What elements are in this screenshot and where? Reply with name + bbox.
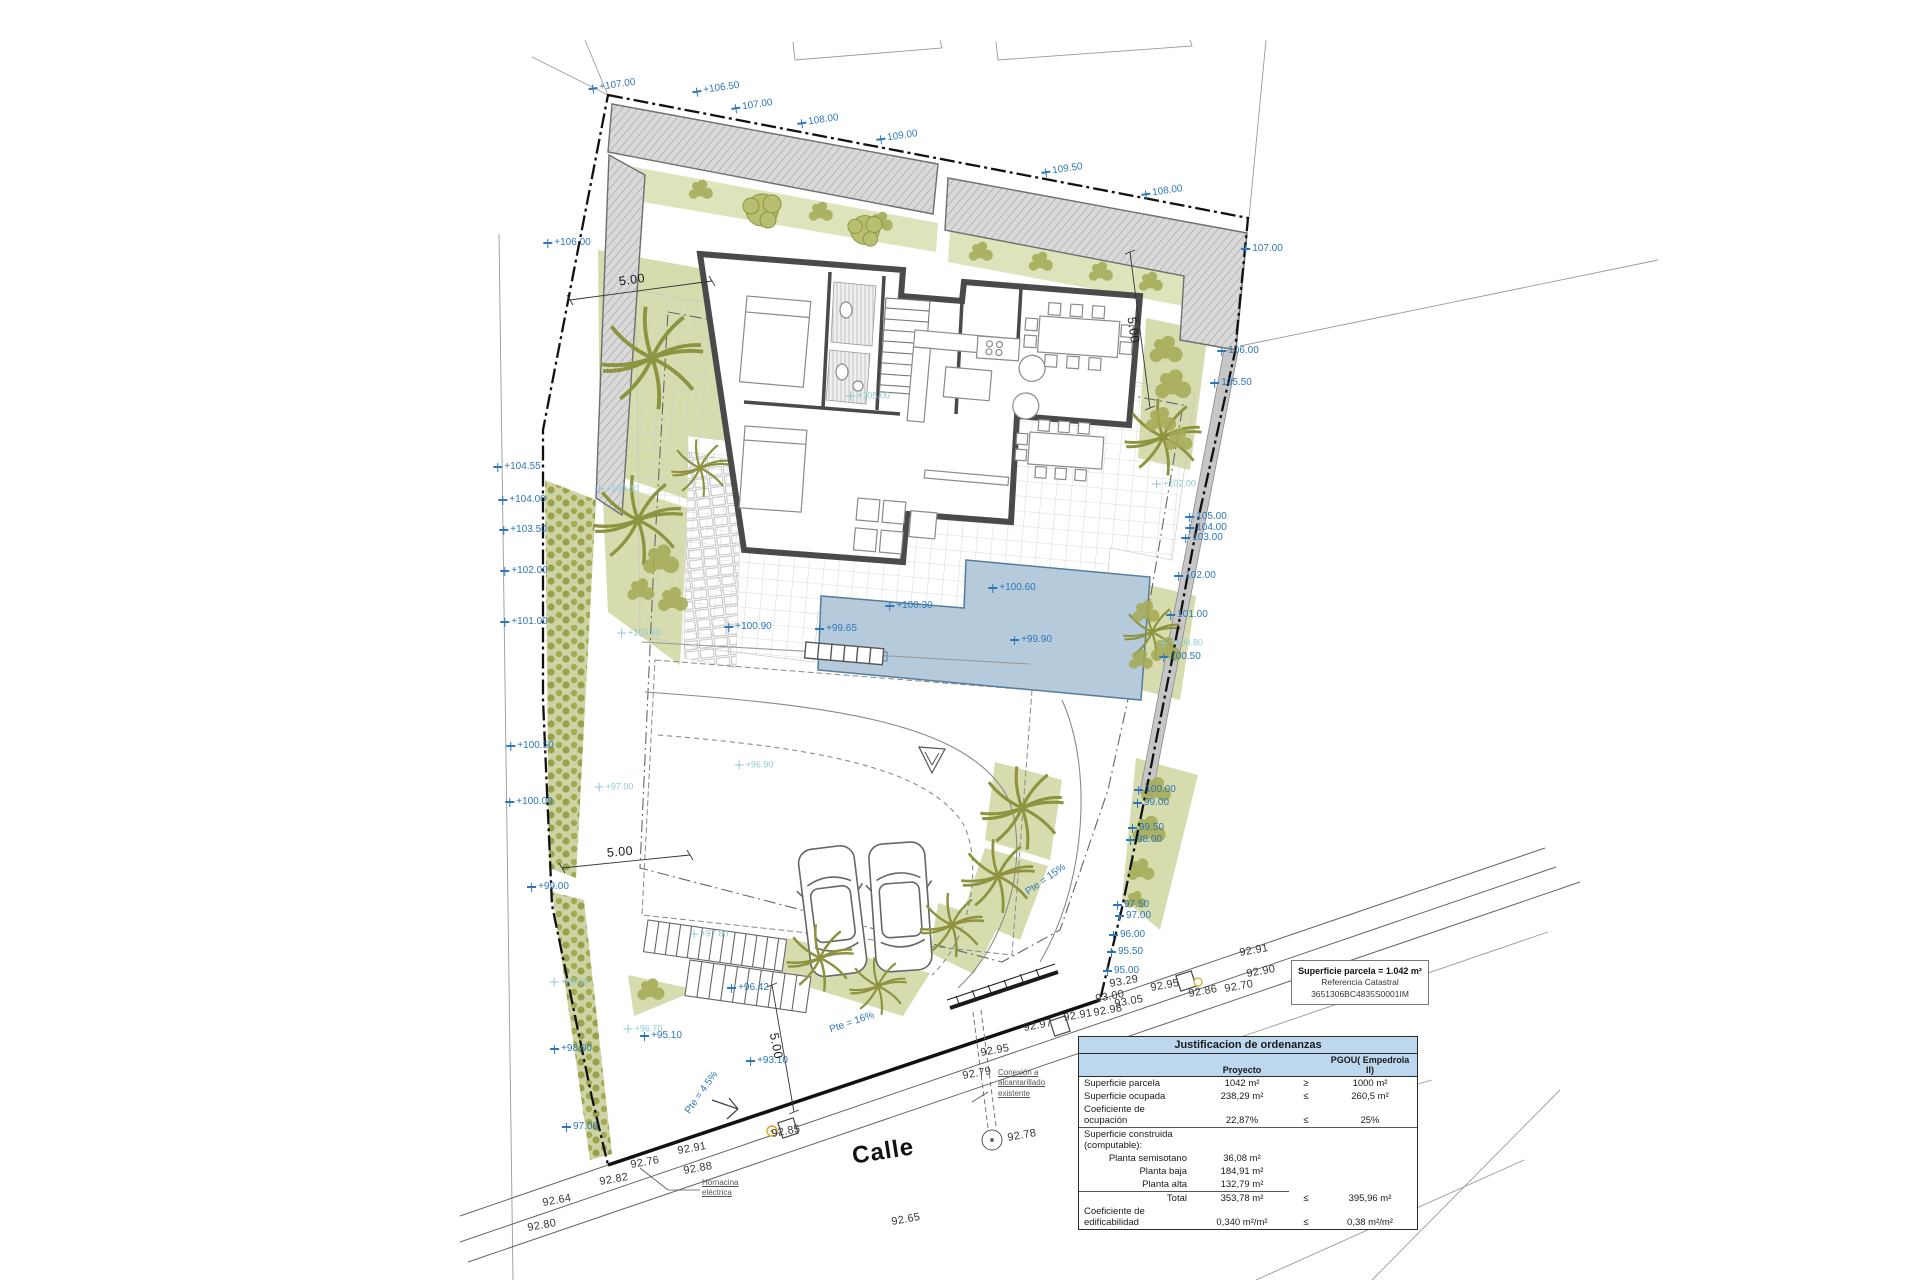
ordenanzas-cell: Coeficiente de ocupación [1079,1103,1195,1128]
sewer-connection-note: Conexión a alcantarillado existente [998,1068,1045,1099]
ordenanzas-cell [1323,1165,1417,1178]
entrance-gate [947,964,1058,1008]
col-header-empty [1079,1054,1195,1077]
site-plan-sheet: +107.00+106.50107.00108.00109.00109.5010… [0,0,1920,1280]
col-header-proyecto: Proyecto [1195,1054,1289,1077]
ordenanzas-cell: 1000 m² [1323,1077,1417,1091]
ordenanzas-cell [1323,1178,1417,1192]
ordenanzas-cell: 132,79 m² [1195,1178,1289,1192]
ordenanzas-cell: 22,87% [1195,1103,1289,1128]
site-plan-drawing [0,0,1920,1280]
ordenanzas-cell [1289,1178,1323,1192]
ordenanzas-cell: 238,29 m² [1195,1090,1289,1103]
ordenanzas-cell: ≥ [1289,1077,1323,1091]
parcel-area-value: Superficie parcela = 1.042 m² [1295,965,1425,977]
col-header-pgou: PGOU( Empedrola II) [1323,1054,1417,1077]
ordenanzas-cell: 0,38 m²/m² [1323,1205,1417,1229]
hornacina-note: Hornacina eléctrica [702,1178,738,1199]
ordenanzas-cell [1289,1152,1323,1165]
ordenanzas-cell: ≤ [1289,1103,1323,1128]
parcel-info-box: Superficie parcela = 1.042 m² Referencia… [1291,960,1429,1005]
ordenanzas-cell: 1042 m² [1195,1077,1289,1091]
ordenanzas-title: Justificacion de ordenanzas [1079,1037,1417,1054]
ordenanzas-cell [1289,1128,1323,1153]
ordenanzas-cell [1289,1165,1323,1178]
ordenanzas-cell: Planta semisotano [1079,1152,1195,1165]
ordenanzas-cell [1323,1128,1417,1153]
ordenanzas-cell: 260,5 m² [1323,1090,1417,1103]
ordenanzas-cell: Total [1079,1192,1195,1206]
leader-lines [640,1092,988,1190]
ordenanzas-cell: ≤ [1289,1205,1323,1229]
ordenanzas-rows: Superficie parcela1042 m²≥1000 m²Superfi… [1079,1077,1417,1230]
ordenanzas-cell: Superficie construida (computable): [1079,1128,1195,1153]
ordenanzas-cell: ≤ [1289,1090,1323,1103]
ordenanzas-cell [1323,1152,1417,1165]
ordenanzas-cell: 184,91 m² [1195,1165,1289,1178]
ordenanzas-table: Justificacion de ordenanzas Proyecto PGO… [1078,1036,1418,1230]
ordenanzas-cell: ≤ [1289,1192,1323,1206]
ordenanzas-cell: Superficie ocupada [1079,1090,1195,1103]
ordenanzas-cell: 36,08 m² [1195,1152,1289,1165]
ordenanzas-cell [1195,1128,1289,1153]
ordenanzas-cell: Superficie parcela [1079,1077,1195,1091]
ordenanzas-cell: Coeficiente de edificabilidad [1079,1205,1195,1229]
ordenanzas-cell: 25% [1323,1103,1417,1128]
col-header-cmp [1289,1054,1323,1077]
catastral-reference: 3651306BC4835S0001IM [1295,989,1425,1000]
catastral-title: Referencia Catastral [1295,977,1425,988]
ordenanzas-cell: Planta alta [1079,1178,1195,1192]
ordenanzas-cell: 0,340 m²/m² [1195,1205,1289,1229]
ordenanzas-cell: Planta baja [1079,1165,1195,1178]
ordenanzas-cell: 353,78 m² [1195,1192,1289,1206]
ordenanzas-cell: 395,96 m² [1323,1192,1417,1206]
